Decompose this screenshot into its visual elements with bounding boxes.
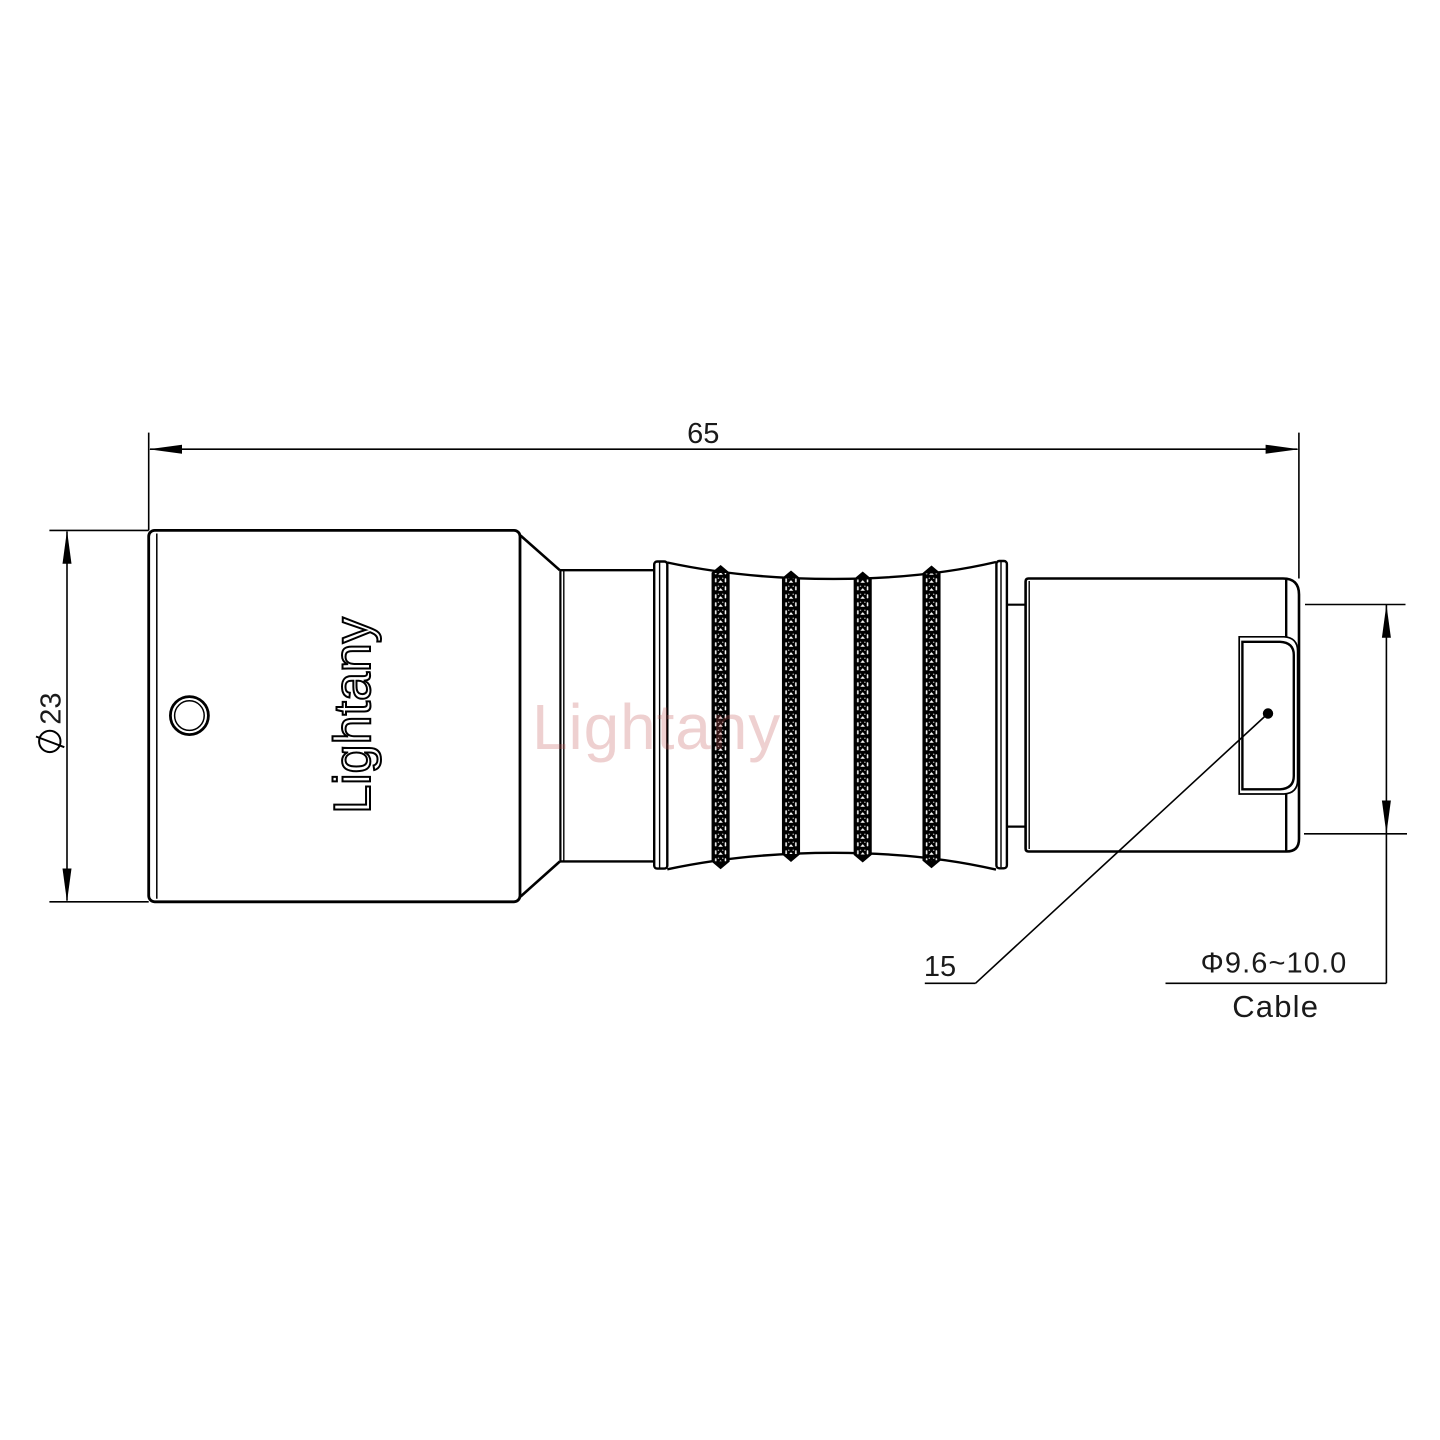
svg-text:23: 23: [36, 692, 68, 724]
svg-text:Lightany: Lightany: [532, 691, 781, 763]
svg-text:15: 15: [924, 951, 956, 983]
svg-text:Lightany: Lightany: [324, 617, 382, 814]
svg-text:65: 65: [687, 418, 719, 450]
svg-text:Φ9.6~10.0: Φ9.6~10.0: [1201, 947, 1348, 979]
svg-text:Cable: Cable: [1232, 989, 1319, 1024]
